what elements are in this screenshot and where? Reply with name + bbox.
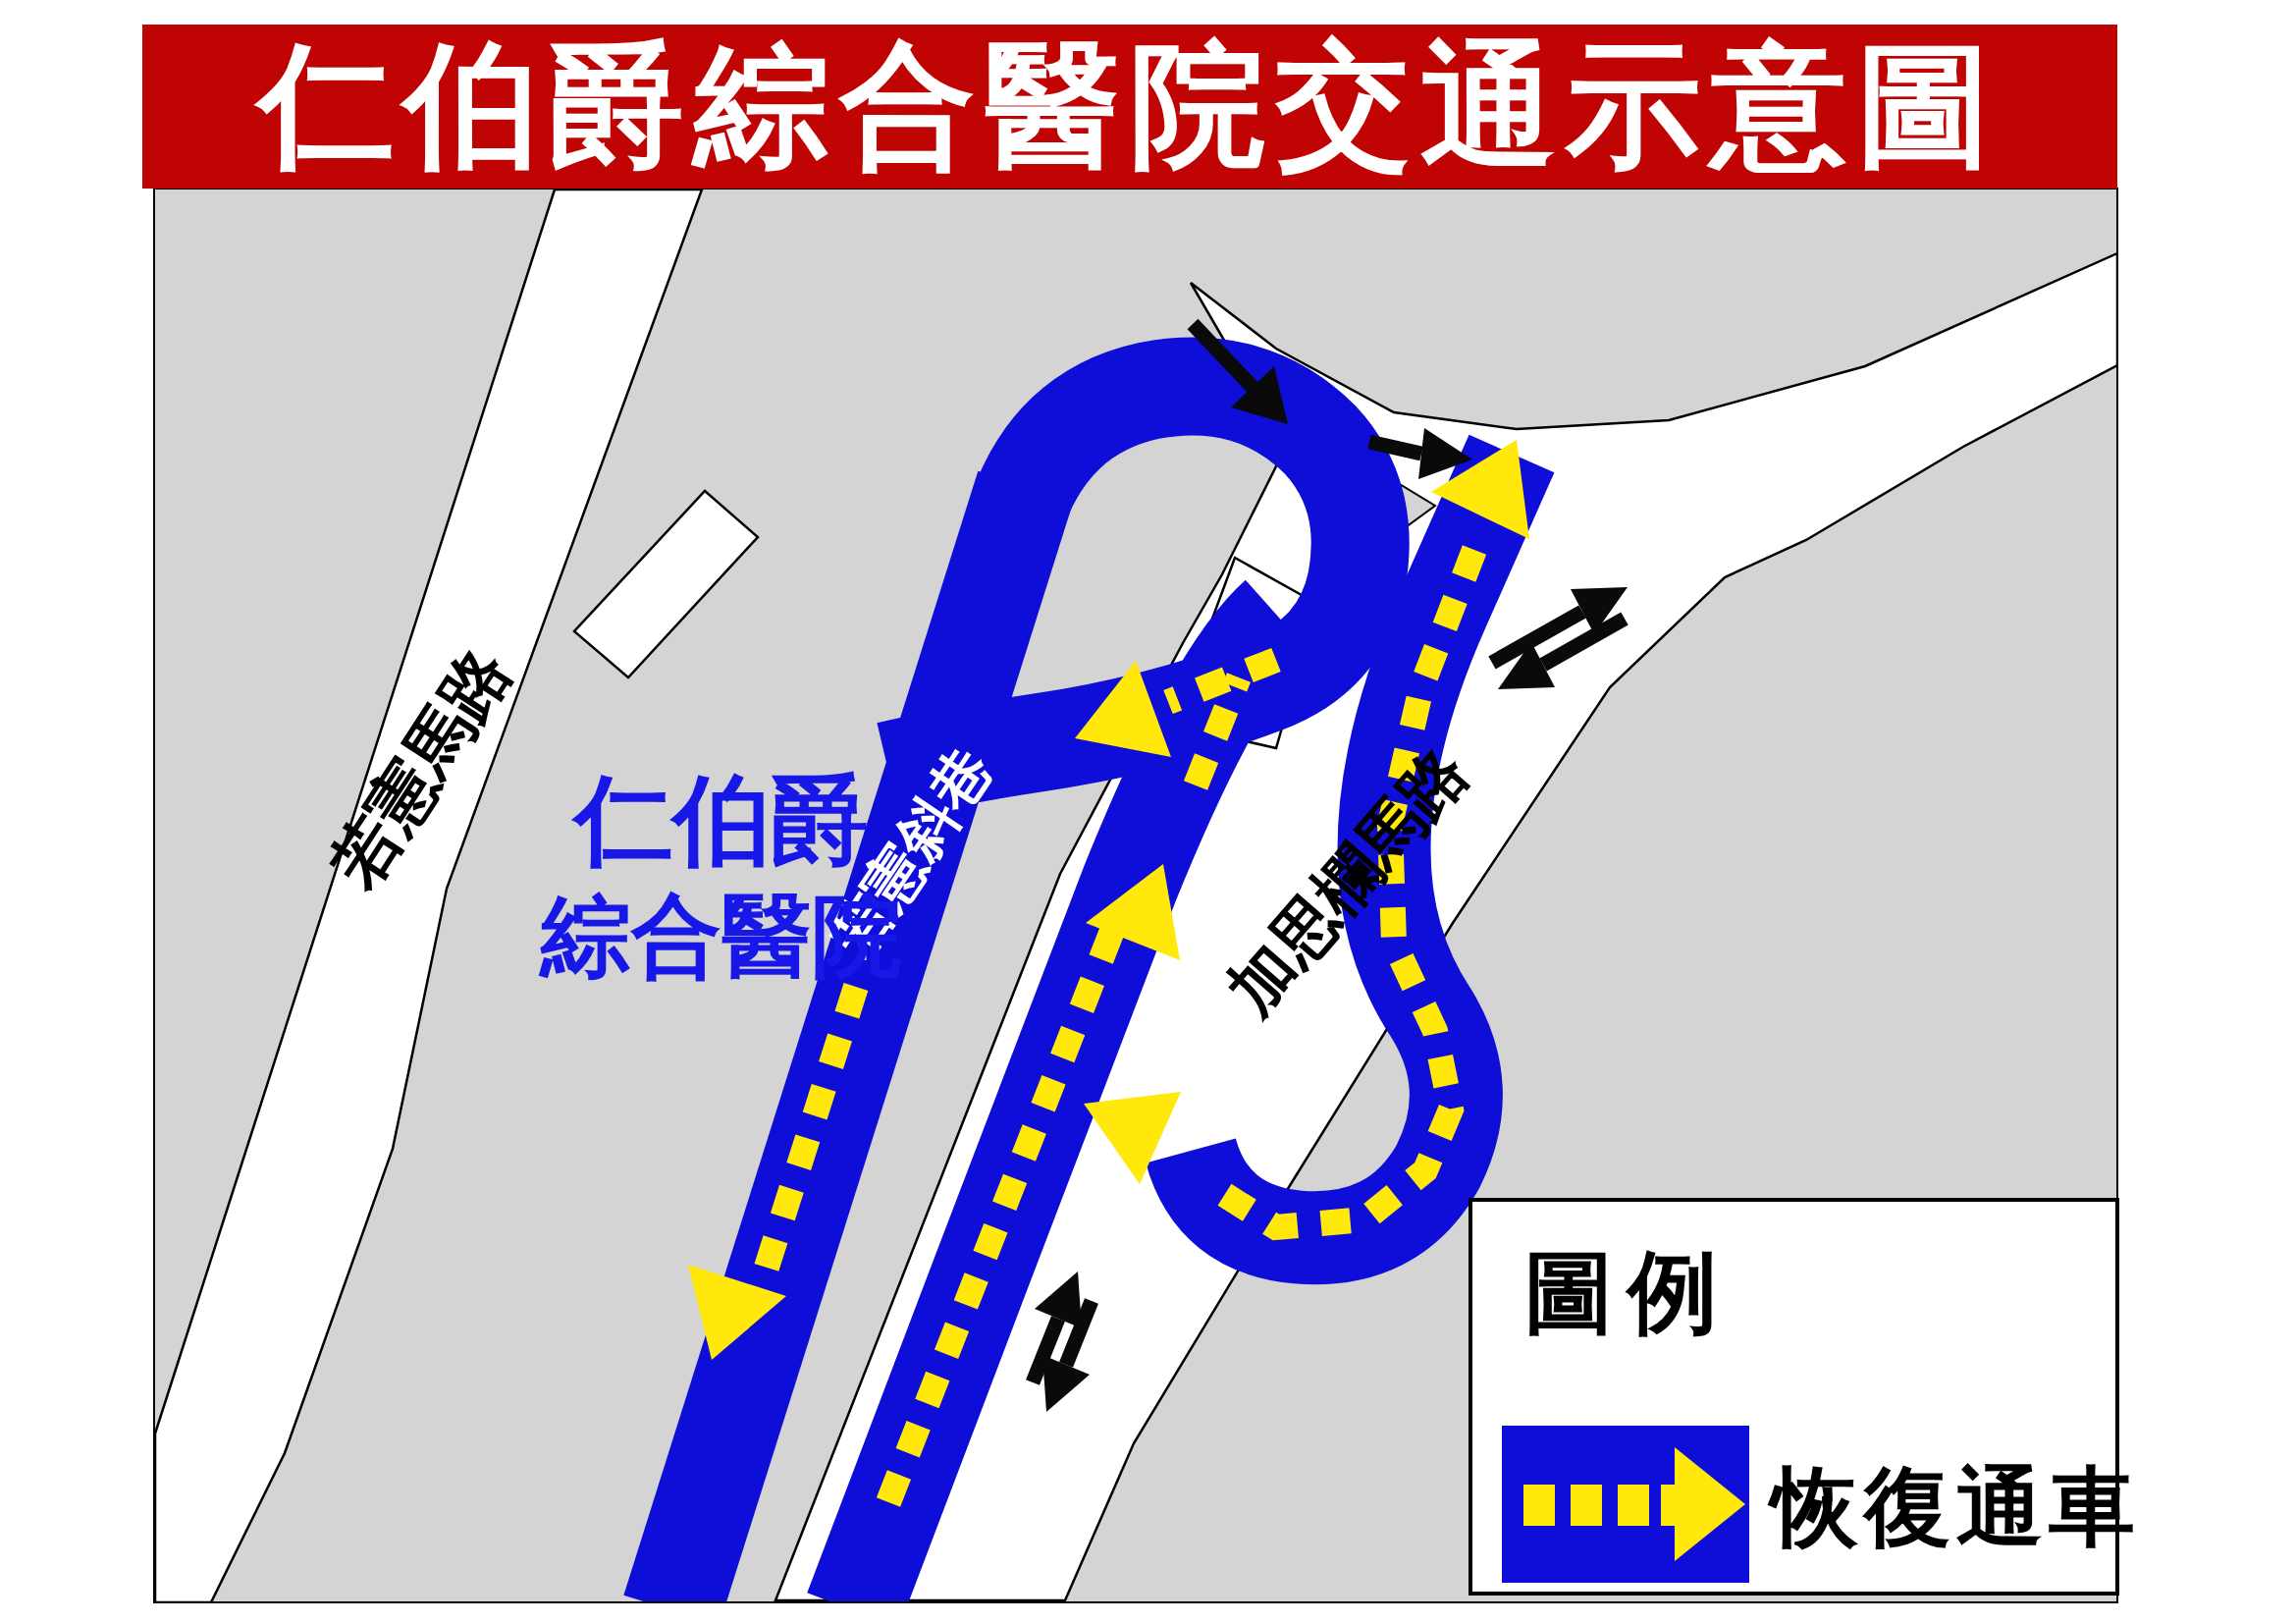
label-hospital-line1: 仁伯爵 — [570, 765, 869, 875]
page-title: 仁伯爵綜合醫院交通示意圖 — [253, 29, 2002, 181]
traffic-diagram-page: 若憲馬路 若憲斜巷 加思欄馬路 仁伯爵 綜合醫院 圖例 恢復通車 — [0, 0, 2296, 1623]
legend-title: 圖例 — [1523, 1243, 1732, 1343]
traffic-map-canvas: 若憲馬路 若憲斜巷 加思欄馬路 仁伯爵 綜合醫院 圖例 恢復通車 — [0, 0, 2296, 1623]
legend-item-label: 恢復通車 — [1767, 1460, 2141, 1555]
legend: 圖例 恢復通車 — [1470, 1200, 2141, 1594]
label-hospital-line2: 綜合醫院 — [538, 886, 902, 986]
